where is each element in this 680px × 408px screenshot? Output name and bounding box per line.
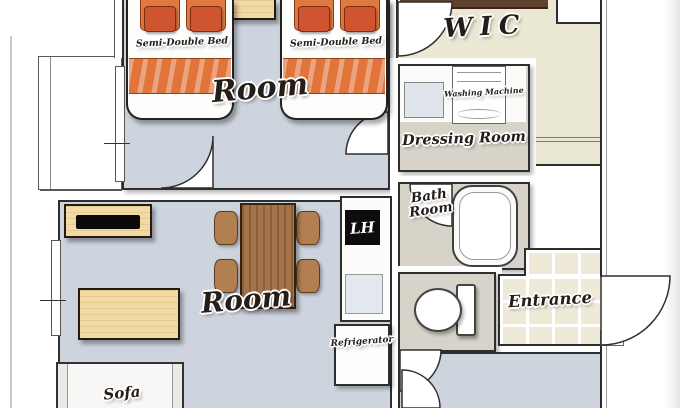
pillow-icon — [298, 6, 330, 32]
washer-lid-line — [457, 72, 501, 82]
kitchen-sink — [345, 274, 383, 314]
pillow-icon — [190, 6, 222, 32]
kitchen-logo-text: LH — [350, 218, 376, 238]
living-room-window — [51, 240, 61, 336]
right-edge-shade — [664, 0, 680, 408]
toilet-icon — [414, 288, 462, 332]
dining-chair — [296, 211, 320, 245]
wall-above-balcony — [114, 0, 122, 58]
outer-wall-corner-line — [40, 190, 122, 191]
window-tick — [40, 300, 66, 301]
bathtub-basin — [459, 192, 511, 260]
coffee-table — [78, 288, 180, 340]
outer-wall-right-lower — [600, 345, 607, 408]
wic-notch — [556, 0, 602, 24]
balcony-rail — [50, 57, 51, 189]
entrance-tiles-upper — [524, 248, 600, 278]
bed-label: Semi-Double Bed — [282, 36, 390, 49]
pillow-icon — [344, 6, 376, 32]
sofa-armrest — [172, 364, 182, 408]
kitchen-logo: LH — [345, 210, 380, 245]
sofa-armrest — [58, 364, 68, 408]
bed-label: Semi-Double Bed — [128, 36, 236, 49]
pillow-icon — [144, 6, 176, 32]
sofa: Sofa — [56, 362, 184, 408]
floor-plan: Semi-Double Bed Semi-Double Bed Room WIC… — [0, 0, 680, 408]
wic-shelf-line — [528, 137, 600, 142]
outer-left-line — [10, 36, 12, 408]
nightstand — [230, 0, 276, 20]
tv-stand — [64, 204, 152, 238]
outer-wall-right-upper — [600, 0, 607, 277]
window-tick — [104, 143, 130, 144]
hallway-floor — [398, 352, 600, 408]
entrance-tiles-main — [498, 276, 600, 346]
dining-chair — [214, 211, 238, 245]
entrance-step-line — [498, 274, 526, 276]
tv-icon — [76, 215, 140, 229]
bathtub-icon — [452, 185, 518, 267]
bedroom-window — [115, 66, 125, 182]
sink — [404, 82, 444, 118]
refrigerator-icon — [334, 324, 390, 386]
sofa-label: Sofa — [72, 382, 173, 406]
closet-rod — [400, 0, 548, 9]
entrance-outside-step — [600, 330, 624, 346]
washer-drum-line — [457, 109, 501, 119]
